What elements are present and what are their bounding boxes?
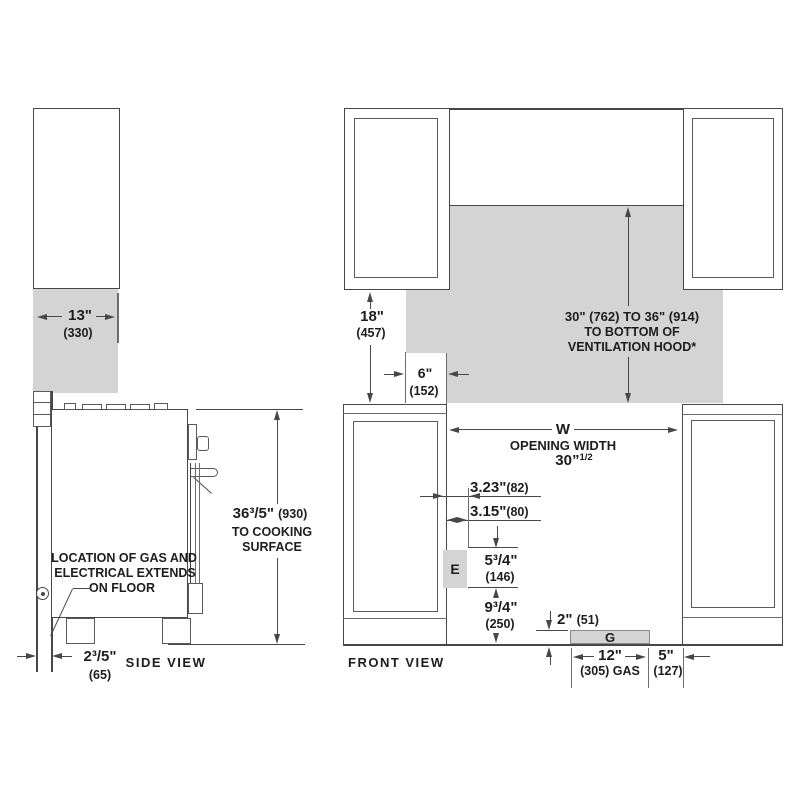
- opening-label: OPENING WIDTH: [510, 439, 616, 453]
- depth-zone-edge-line: [117, 293, 119, 343]
- offset-a-mm: (82): [506, 481, 528, 495]
- base-left-counter-line: [343, 413, 447, 414]
- opening-line-r: [574, 429, 668, 430]
- gas-note-line2: ELECTRICAL EXTENDS: [54, 567, 195, 580]
- side-cabinet-depth-zone: [33, 289, 118, 393]
- gas-dim-tick-1: [571, 648, 572, 688]
- depth-dim-mm: (330): [63, 327, 92, 340]
- electrical-zone-label: E: [450, 561, 459, 577]
- strip-top-box-3: [33, 414, 51, 427]
- range-foot-right: [162, 618, 191, 644]
- offset-b-arrow-l: [447, 517, 457, 523]
- g-height-arrow-down: [546, 620, 552, 630]
- e-height-arrow-up: [493, 588, 499, 598]
- height-dim-line-top: [277, 419, 278, 504]
- overhang-line-r: [458, 374, 469, 375]
- gas-right-value: 5": [658, 648, 673, 664]
- e-height-arrow-down: [493, 538, 499, 548]
- vent-zone-upper: [450, 206, 683, 290]
- burner-grate-3: [106, 404, 126, 410]
- installation-diagram: 13" (330) LOCATION OF GAS AND E: [0, 0, 800, 800]
- height-arrow-down: [274, 634, 280, 644]
- wall-strip-left-line: [36, 391, 38, 672]
- rear-gap-line-r: [62, 656, 72, 657]
- burner-grate-1: [64, 403, 76, 410]
- upper-height-mm: (457): [356, 327, 385, 340]
- gas-width-arrow-l: [573, 654, 583, 660]
- control-knob: [197, 436, 209, 451]
- gas-dim-tick-2: [648, 648, 649, 688]
- opening-value-sup: 1/2: [579, 452, 592, 463]
- hood-clearance-line3: VENTILATION HOOD*: [568, 341, 696, 354]
- gas-note-line3: ON FLOOR: [89, 582, 155, 595]
- g-height-value: 2": [557, 611, 572, 628]
- overhang-value: 6": [418, 366, 432, 381]
- offset-a-value: 3.23": [470, 479, 506, 496]
- side-upper-cabinet: [33, 108, 120, 289]
- hood-clearance-line2: TO BOTTOM OF: [584, 326, 679, 339]
- depth-dim-value: 13": [68, 308, 92, 324]
- depth-dim-line-l: [47, 316, 62, 317]
- gas-right-line: [694, 656, 710, 657]
- vent-zone-top-line: [450, 205, 683, 207]
- door-line-3: [199, 463, 200, 583]
- burner-grate-4: [130, 404, 150, 410]
- gas-width-value: 12": [598, 648, 622, 664]
- gas-right-mm: (127): [653, 665, 682, 678]
- electrical-zone-box: E: [443, 550, 467, 588]
- gas-zone-box: G: [570, 630, 650, 644]
- e-floor-mm: (250): [485, 618, 514, 631]
- height-dim-tick-bottom: [168, 644, 305, 645]
- g-height-stem-bottom: [550, 656, 551, 665]
- gas-width-mm: (305) GAS: [580, 665, 640, 678]
- height-mm: (930): [278, 507, 307, 521]
- opening-arrow-left: [449, 427, 459, 433]
- offset-b-label: 3.15"(80): [470, 504, 529, 520]
- g-height-tick: [536, 630, 568, 631]
- overhang-mm: (152): [409, 385, 438, 398]
- handle-support-line: [193, 477, 212, 494]
- e-floor-value: 9³/4": [485, 600, 518, 616]
- front-view-label: FRONT VIEW: [348, 656, 445, 670]
- e-height-value: 5³/4": [485, 553, 518, 569]
- height-dim-line3: SURFACE: [242, 541, 302, 554]
- e-floor-arrow-down: [493, 633, 499, 643]
- rear-gap-mm: (65): [89, 669, 111, 682]
- gas-width-arrow-r: [636, 654, 646, 660]
- offset-a-arrow-r: [433, 493, 443, 499]
- upper-height-line-bottom: [370, 345, 371, 394]
- base-right-toe-line: [682, 617, 783, 618]
- front-upper-cabinet-left-door: [354, 118, 438, 278]
- opening-value: 30”1/2: [555, 453, 592, 469]
- notch-left-line: [405, 352, 406, 403]
- upper-height-arrow-down: [367, 393, 373, 403]
- offset-a-label: 3.23"(82): [470, 480, 529, 496]
- upper-height-value: 18": [360, 309, 384, 325]
- e-height-stem-top: [497, 526, 498, 538]
- hood-clearance-line1: 30" (762) TO 36" (914): [565, 310, 699, 324]
- opening-symbol: W: [556, 422, 570, 438]
- height-dim-tick-top: [196, 409, 303, 410]
- bottom-drawer: [188, 583, 203, 614]
- rear-gap-arrow-l: [26, 653, 36, 659]
- rear-gap-value: 2³/5": [84, 649, 117, 665]
- offset-b-value: 3.15": [470, 503, 506, 520]
- gas-width-line-r: [625, 656, 636, 657]
- front-base-cabinet-left-door: [353, 421, 438, 612]
- front-upper-cabinet-right-door: [692, 118, 774, 278]
- hood-line-top: [628, 216, 629, 306]
- e-height-mm: (146): [485, 571, 514, 584]
- gas-zone-label: G: [605, 630, 615, 645]
- base-left-toe-line: [343, 618, 447, 619]
- floor-line: [343, 644, 783, 646]
- overhang-arrow-l: [394, 371, 404, 377]
- gas-note-line1: LOCATION OF GAS AND: [51, 552, 197, 565]
- height-dim-line2: TO COOKING: [232, 526, 312, 539]
- burner-grate-2: [82, 404, 102, 410]
- gas-outlet-dot: [41, 592, 45, 596]
- overhang-arrow-r: [448, 371, 458, 377]
- depth-arrow-left: [37, 314, 47, 320]
- height-value: 36³/5": [233, 505, 274, 522]
- gas-note-leader-h: [73, 588, 91, 589]
- depth-arrow-right: [105, 314, 115, 320]
- hood-arrow-down: [625, 393, 631, 403]
- front-base-cabinet-right-door: [691, 420, 775, 608]
- gas-right-arrow: [684, 654, 694, 660]
- height-dim-line-bottom: [277, 558, 278, 635]
- offset-b-mm: (80): [506, 505, 528, 519]
- rear-gap-arrow-r: [52, 653, 62, 659]
- opening-arrow-right: [668, 427, 678, 433]
- opening-line-l: [459, 429, 552, 430]
- control-panel: [188, 424, 197, 460]
- gas-width-line-l: [583, 656, 594, 657]
- offset-b-arrow-r: [457, 517, 467, 523]
- hood-line-bottom: [628, 357, 629, 394]
- range-foot-left: [66, 618, 95, 644]
- side-view-label: SIDE VIEW: [126, 656, 207, 670]
- burner-grate-5: [154, 403, 168, 410]
- height-dim-value: 36³/5" (930): [233, 506, 308, 522]
- notch-right-line: [446, 353, 447, 404]
- opening-value-main: 30”: [555, 452, 579, 469]
- g-height-label: 2" (51): [557, 612, 599, 628]
- offset-ref-line: [468, 488, 469, 548]
- g-height-mm: (51): [577, 613, 599, 627]
- base-right-counter-line: [682, 414, 783, 415]
